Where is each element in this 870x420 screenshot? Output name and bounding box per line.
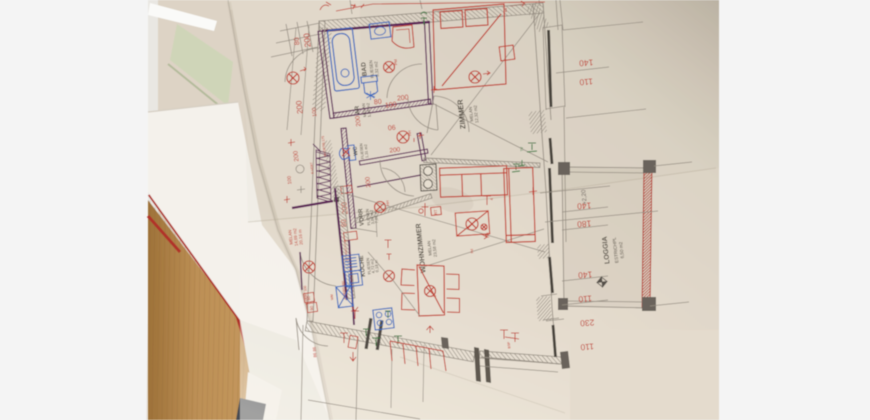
- svg-text:200: 200: [389, 146, 401, 154]
- svg-text:230: 230: [580, 318, 595, 329]
- svg-text:180: 180: [577, 219, 592, 230]
- svg-text:100: 100: [312, 107, 319, 117]
- svg-text:PM: PM: [394, 59, 399, 65]
- svg-text:200: 200: [294, 100, 304, 115]
- svg-text:140: 140: [577, 201, 592, 212]
- svg-text:WC: WC: [353, 146, 360, 156]
- svg-text:HH: HH: [386, 200, 391, 206]
- svg-text:HH: HH: [486, 232, 491, 238]
- svg-text:140: 140: [579, 58, 594, 69]
- svg-text:110: 110: [579, 77, 593, 88]
- svg-text:80: 80: [294, 37, 302, 46]
- svg-text:06: 06: [388, 125, 397, 133]
- svg-text:100: 100: [287, 175, 294, 184]
- svg-text:WM: WM: [330, 294, 335, 301]
- svg-text:Rd: Rd: [470, 249, 474, 254]
- svg-text:110: 110: [578, 294, 592, 305]
- svg-text:140: 140: [578, 270, 593, 281]
- svg-text:110: 110: [580, 342, 594, 353]
- svg-text:100: 100: [385, 101, 397, 109]
- svg-text:200: 200: [364, 176, 372, 188]
- svg-text:200: 200: [301, 32, 312, 47]
- svg-text:200: 200: [354, 115, 362, 127]
- svg-text:200: 200: [397, 94, 409, 102]
- svg-text:3: 3: [433, 295, 437, 298]
- svg-text:BSP: BSP: [507, 341, 512, 349]
- svg-text:200: 200: [292, 150, 300, 162]
- svg-text:HH: HH: [408, 130, 413, 136]
- svg-text:80: 80: [374, 99, 383, 107]
